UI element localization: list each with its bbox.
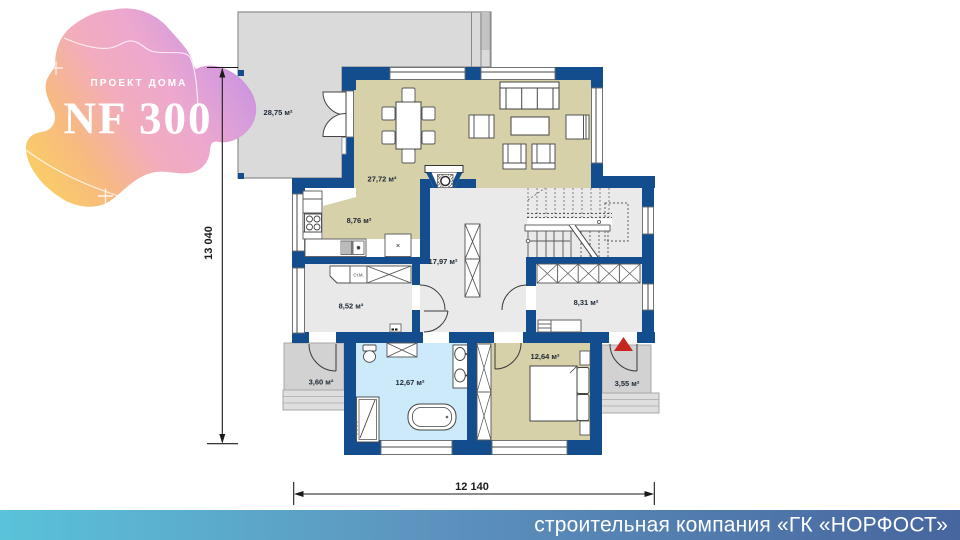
svg-text:8,52 м²: 8,52 м² (339, 302, 364, 311)
svg-text:8,31 м²: 8,31 м² (574, 298, 599, 307)
svg-text:Ст.М.: Ст.М. (353, 273, 363, 278)
svg-text:3,60 м²: 3,60 м² (309, 378, 334, 387)
svg-text:NF 300: NF 300 (63, 94, 212, 144)
svg-text:8,76 м²: 8,76 м² (347, 216, 372, 225)
svg-text:27,72 м²: 27,72 м² (368, 175, 397, 184)
svg-text:3,55 м²: 3,55 м² (615, 379, 640, 388)
svg-text:12 140: 12 140 (455, 481, 489, 493)
svg-text:12,67 м²: 12,67 м² (396, 378, 425, 387)
svg-text:17,97 м²: 17,97 м² (429, 257, 458, 266)
svg-text:ПРОЕКТ ДОМА: ПРОЕКТ ДОМА (91, 78, 188, 89)
svg-text:13 040: 13 040 (203, 226, 215, 260)
svg-text:строительная компания «ГК «НОР: строительная компания «ГК «НОРФОСТ» (534, 514, 948, 537)
svg-text:12,64 м²: 12,64 м² (531, 352, 560, 361)
svg-text:28,75 м²: 28,75 м² (264, 108, 293, 117)
